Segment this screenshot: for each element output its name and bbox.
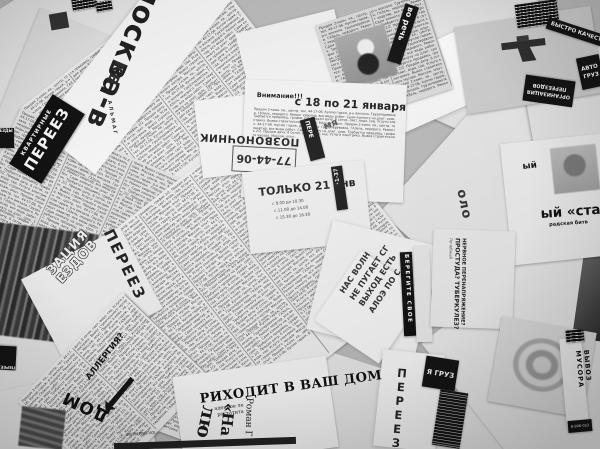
headline-fragment: ый <box>522 160 537 171</box>
article-photo <box>550 144 600 195</box>
health-ad-text: Лечебный ПРОСТУДА? ТУБЕРКУЛЕЗ? НЕРВНОЕ П… <box>447 238 467 330</box>
edge-ad-box: ПЕРЕЕЗ <box>0 346 17 371</box>
ad-text: ЕЗДЫ <box>0 128 14 133</box>
cargo-ad-box: Я ГРУЗ <box>422 356 459 392</box>
ad-text: ПЕРЕЕЗ <box>0 365 16 371</box>
small-photo <box>18 406 66 449</box>
novel-title-fragment: Роман Г <box>243 398 254 437</box>
edge-ad-box: ЕЗДЫ <box>0 128 14 148</box>
newspaper-collage-photo: Продам 2-комн. кв., центр, тел. 44-17-06… <box>0 0 600 449</box>
vertical-text-strip <box>413 246 432 342</box>
dark-photo-bit <box>49 12 70 31</box>
black-ad-box <box>566 329 585 343</box>
revolver-photo <box>498 27 560 72</box>
phone-ad-box: 8-906-033 <box>568 419 593 433</box>
health-ad-scrap <box>430 229 515 330</box>
ad-line: ГРУЗ <box>583 71 600 80</box>
